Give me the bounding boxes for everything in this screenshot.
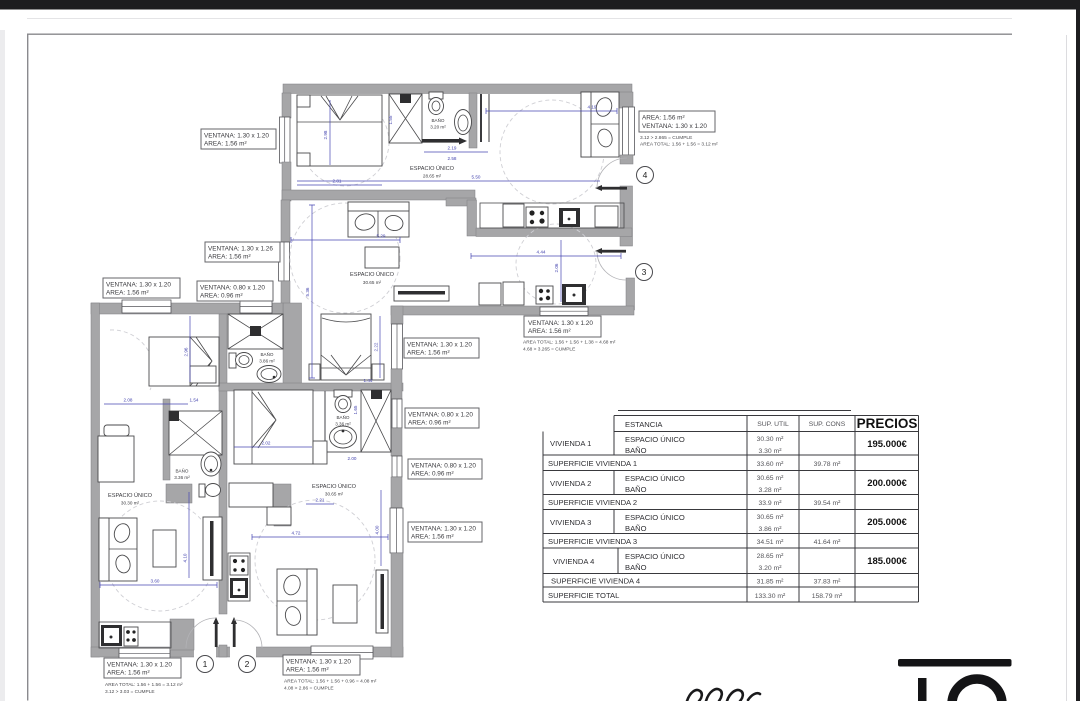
svg-text:5.50: 5.50: [472, 175, 481, 180]
svg-text:VENTANA: 1.30 x 1.20: VENTANA: 1.30 x 1.20: [642, 123, 707, 130]
svg-text:BAÑO: BAÑO: [175, 468, 188, 474]
svg-text:AREA: 1.56 m²: AREA: 1.56 m²: [642, 115, 685, 122]
svg-text:39.78 m²: 39.78 m²: [814, 461, 842, 468]
svg-text:2.98: 2.98: [323, 130, 328, 139]
svg-text:SUPERFICIE TOTAL: SUPERFICIE TOTAL: [548, 591, 619, 600]
svg-text:ESPACIO ÚNICO: ESPACIO ÚNICO: [350, 271, 395, 278]
svg-text:2.96: 2.96: [184, 347, 189, 356]
svg-text:VIVIENDA 4: VIVIENDA 4: [553, 557, 594, 566]
svg-text:AREA: 1.56 m²: AREA: 1.56 m²: [106, 290, 149, 297]
svg-text:2.08: 2.08: [124, 398, 133, 403]
svg-text:39.54 m²: 39.54 m²: [814, 500, 842, 507]
svg-text:AREA: 1.56 m²: AREA: 1.56 m²: [407, 350, 450, 357]
svg-text:VENTANA: 1.30 x 1.26: VENTANA: 1.30 x 1.26: [208, 246, 273, 253]
svg-text:1.44: 1.44: [364, 378, 373, 383]
svg-text:3.36 m²: 3.36 m²: [174, 475, 190, 480]
svg-text:33.60 m²: 33.60 m²: [757, 461, 785, 468]
svg-text:3.12 > 3.03 = CUMPLE: 3.12 > 3.03 = CUMPLE: [105, 689, 155, 695]
svg-text:28.65 m²: 28.65 m²: [423, 174, 442, 179]
svg-text:4.08 > 2.86 = CUMPLE: 4.08 > 2.86 = CUMPLE: [284, 686, 334, 692]
svg-text:SUPERFICIE VIVIENDA 1: SUPERFICIE VIVIENDA 1: [548, 459, 637, 468]
svg-text:3.12 > 2.865 = CUMPLE: 3.12 > 2.865 = CUMPLE: [640, 135, 692, 141]
svg-text:VENTANA: 1.30 x 1.20: VENTANA: 1.30 x 1.20: [528, 320, 593, 327]
svg-text:200.000€: 200.000€: [867, 478, 907, 489]
svg-text:AREA TOTAL: 1.56 + 1.56 = 3.12: AREA TOTAL: 1.56 + 1.56 = 3.12 m²: [640, 142, 718, 148]
svg-text:4.72: 4.72: [292, 531, 301, 536]
svg-text:AREA TOTAL: 1.56 + 1.56 + 0.96: AREA TOTAL: 1.56 + 1.56 + 0.96 = 4.08 m²: [284, 679, 377, 685]
svg-text:4.19: 4.19: [588, 105, 597, 110]
svg-text:41.64 m²: 41.64 m²: [814, 539, 842, 546]
svg-text:SUP. CONS: SUP. CONS: [809, 421, 846, 428]
svg-text:BAÑO: BAÑO: [625, 524, 647, 533]
svg-text:3: 3: [642, 267, 647, 277]
svg-text:ESPACIO ÚNICO: ESPACIO ÚNICO: [625, 513, 685, 522]
svg-text:VENTANA: 1.30 x 1.20: VENTANA: 1.30 x 1.20: [107, 662, 172, 669]
svg-text:4.00: 4.00: [375, 525, 380, 534]
svg-text:2.21: 2.21: [316, 498, 325, 503]
svg-text:5.29: 5.29: [377, 234, 386, 239]
svg-text:SUPERFICIE VIVIENDA 2: SUPERFICIE VIVIENDA 2: [548, 498, 637, 507]
svg-text:3.86 m²: 3.86 m²: [259, 359, 275, 364]
svg-text:AREA: 0.96 m²: AREA: 0.96 m²: [408, 420, 451, 427]
svg-text:AREA: 1.56 m²: AREA: 1.56 m²: [411, 534, 454, 541]
svg-text:AREA: 0.96 m²: AREA: 0.96 m²: [200, 293, 243, 300]
svg-text:30.65 m²: 30.65 m²: [757, 514, 785, 521]
svg-text:AREA: 1.56 m²: AREA: 1.56 m²: [286, 667, 329, 674]
svg-text:4.10: 4.10: [183, 553, 188, 562]
svg-text:VIVIENDA 3: VIVIENDA 3: [550, 518, 591, 527]
svg-text:BAÑO: BAÑO: [625, 485, 647, 494]
svg-text:AREA: 1.56 m²: AREA: 1.56 m²: [107, 670, 150, 677]
svg-text:2.58: 2.58: [448, 156, 457, 161]
svg-text:VIVIENDA 2: VIVIENDA 2: [550, 479, 591, 488]
svg-text:ESPACIO ÚNICO: ESPACIO ÚNICO: [410, 165, 455, 172]
svg-text:3.20 m²: 3.20 m²: [430, 125, 446, 130]
svg-text:37.83 m²: 37.83 m²: [814, 579, 842, 586]
svg-text:VENTANA: 1.30 x 1.20: VENTANA: 1.30 x 1.20: [106, 282, 171, 289]
svg-text:AREA TOTAL: 1.56 + 1.56 = 3.12: AREA TOTAL: 1.56 + 1.56 = 3.12 m²: [105, 682, 183, 688]
svg-text:BAÑO: BAÑO: [625, 563, 647, 572]
svg-text:30.65 m²: 30.65 m²: [757, 475, 785, 482]
svg-text:AREA: 1.56 m²: AREA: 1.56 m²: [528, 328, 571, 335]
svg-text:2: 2: [245, 659, 250, 669]
svg-text:1.54: 1.54: [190, 398, 199, 403]
svg-text:BAÑO: BAÑO: [336, 414, 349, 420]
svg-text:4: 4: [643, 170, 648, 180]
svg-text:4.44: 4.44: [537, 250, 546, 255]
svg-text:ESPACIO ÚNICO: ESPACIO ÚNICO: [312, 483, 357, 490]
svg-text:VENTANA: 1.30 x 1.20: VENTANA: 1.30 x 1.20: [407, 342, 472, 349]
svg-text:ESPACIO ÚNICO: ESPACIO ÚNICO: [625, 552, 685, 561]
svg-text:VENTANA: 1.30 x 1.20: VENTANA: 1.30 x 1.20: [204, 133, 269, 140]
svg-text:1: 1: [203, 659, 208, 669]
svg-text:195.000€: 195.000€: [867, 439, 907, 450]
svg-text:34.51 m²: 34.51 m²: [757, 539, 785, 546]
svg-text:30.65 m²: 30.65 m²: [325, 492, 344, 497]
svg-text:1.55: 1.55: [388, 115, 393, 124]
svg-text:158.79 m²: 158.79 m²: [812, 593, 843, 600]
svg-text:4.68 > 3.265 = CUMPLE: 4.68 > 3.265 = CUMPLE: [523, 347, 575, 353]
svg-text:3.28 m²: 3.28 m²: [758, 487, 782, 494]
svg-text:PRECIOS: PRECIOS: [857, 416, 918, 431]
svg-text:SUPERFICIE VIVIENDA 3: SUPERFICIE VIVIENDA 3: [548, 537, 637, 546]
svg-text:30.65 m²: 30.65 m²: [363, 280, 382, 285]
svg-text:ESTANCIA: ESTANCIA: [625, 420, 663, 429]
svg-text:VIVIENDA 1: VIVIENDA 1: [550, 439, 591, 448]
svg-text:VENTANA: 1.30 x 1.20: VENTANA: 1.30 x 1.20: [286, 659, 351, 666]
svg-text:AREA TOTAL: 1.56 + 1.56 + 1.3: AREA TOTAL: 1.56 + 1.56 + 1.38 = 4.68 m²: [523, 340, 616, 346]
svg-text:30.30 m²: 30.30 m²: [121, 501, 140, 506]
svg-text:3.30 m²: 3.30 m²: [758, 448, 782, 455]
svg-text:SUP. UTIL: SUP. UTIL: [757, 421, 789, 428]
svg-text:SUPERFICIE VIVIENDA 4: SUPERFICIE VIVIENDA 4: [551, 577, 640, 586]
svg-text:133.30 m²: 133.30 m²: [755, 593, 786, 600]
svg-text:31.85 m²: 31.85 m²: [757, 579, 785, 586]
svg-text:1.65: 1.65: [353, 405, 358, 414]
svg-text:ESPACIO ÚNICO: ESPACIO ÚNICO: [625, 435, 685, 444]
svg-text:185.000€: 185.000€: [867, 556, 907, 567]
svg-text:30.30 m²: 30.30 m²: [757, 436, 785, 443]
svg-text:3.20 m²: 3.20 m²: [758, 565, 782, 572]
svg-text:ESPACIO ÚNICO: ESPACIO ÚNICO: [108, 492, 153, 499]
svg-text:VENTANA: 0.80 x 1.20: VENTANA: 0.80 x 1.20: [411, 463, 476, 470]
svg-text:VENTANA: 1.30 x 1.20: VENTANA: 1.30 x 1.20: [411, 526, 476, 533]
svg-text:VENTANA: 0.80 x 1.20: VENTANA: 0.80 x 1.20: [200, 285, 265, 292]
svg-text:2.02: 2.02: [262, 441, 271, 446]
svg-text:AREA: 0.96 m²: AREA: 0.96 m²: [411, 471, 454, 478]
svg-text:2.06: 2.06: [554, 263, 559, 272]
svg-text:VENTANA: 0.80 x 1.20: VENTANA: 0.80 x 1.20: [408, 412, 473, 419]
svg-text:AREA: 1.56 m²: AREA: 1.56 m²: [208, 254, 251, 261]
svg-text:AREA: 1.56 m²: AREA: 1.56 m²: [204, 141, 247, 148]
svg-text:3.36 m²: 3.36 m²: [335, 422, 351, 427]
svg-text:2.22: 2.22: [374, 342, 379, 351]
svg-text:BAÑO: BAÑO: [431, 117, 444, 123]
svg-text:3.86 m²: 3.86 m²: [758, 526, 782, 533]
svg-text:33.9 m²: 33.9 m²: [758, 500, 782, 507]
svg-text:ESPACIO ÚNICO: ESPACIO ÚNICO: [625, 474, 685, 483]
svg-text:2.00: 2.00: [348, 456, 357, 461]
svg-text:205.000€: 205.000€: [867, 517, 907, 528]
svg-text:5.36: 5.36: [305, 287, 310, 296]
svg-text:3.60: 3.60: [151, 579, 160, 584]
svg-text:28.65 m²: 28.65 m²: [757, 553, 785, 560]
svg-text:2.19: 2.19: [448, 146, 457, 151]
svg-text:BAÑO: BAÑO: [625, 446, 647, 455]
svg-text:BAÑO: BAÑO: [260, 351, 273, 357]
